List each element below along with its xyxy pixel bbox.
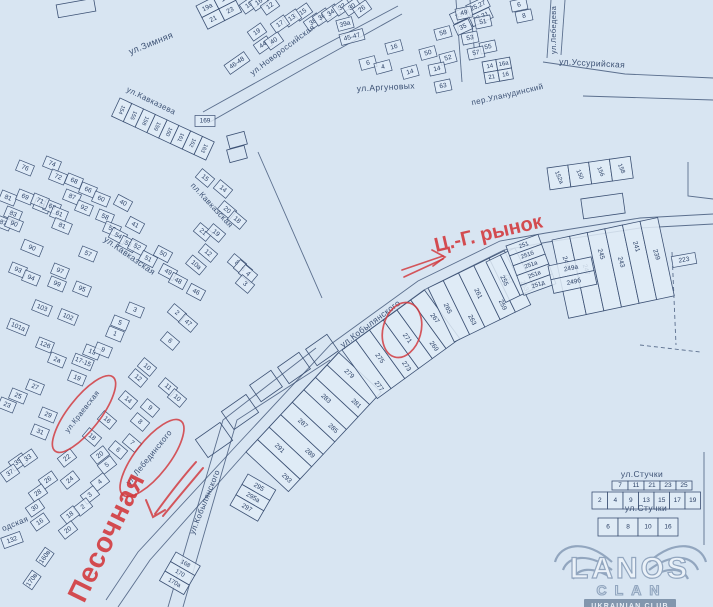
watermark-subtitle: CLAN	[597, 582, 668, 598]
street-label: ул.Стучки	[621, 469, 663, 479]
parcel-group: 711212325	[612, 481, 692, 490]
street-label: ул.Стучки	[625, 503, 667, 513]
parcel-number: 10	[644, 524, 652, 531]
parcel-group: 1416а2116	[482, 57, 513, 84]
parcel-group: 681016	[598, 518, 678, 536]
parcel-number: 11	[633, 482, 640, 489]
map-screenshot: 19а1в21231541551581591601611621632932912…	[0, 0, 713, 607]
parcel-number: 2	[598, 497, 602, 504]
parcel-number: 16	[664, 524, 672, 531]
parcel-number: 169	[200, 118, 211, 125]
parcel-number: 4	[613, 497, 617, 504]
parcel-number: 6	[606, 524, 610, 531]
parcel-number: 21	[648, 482, 656, 489]
parcel-number: 19	[689, 497, 697, 504]
parcel-number: 17	[674, 497, 682, 504]
parcel-number: 23	[664, 482, 672, 489]
street-label: ул.Лебедева	[549, 5, 558, 54]
watermark-title: LANOS	[570, 552, 690, 585]
parcel-number: 8	[626, 524, 630, 531]
watermark-band-text: UKRAINIAN CLUB	[591, 603, 668, 607]
map-canvas: 19а1в21231541551581591601611621632932912…	[0, 0, 713, 607]
parcel-number: 25	[680, 482, 688, 489]
parcel: 169	[195, 116, 215, 127]
parcel-number: 7	[618, 482, 622, 489]
